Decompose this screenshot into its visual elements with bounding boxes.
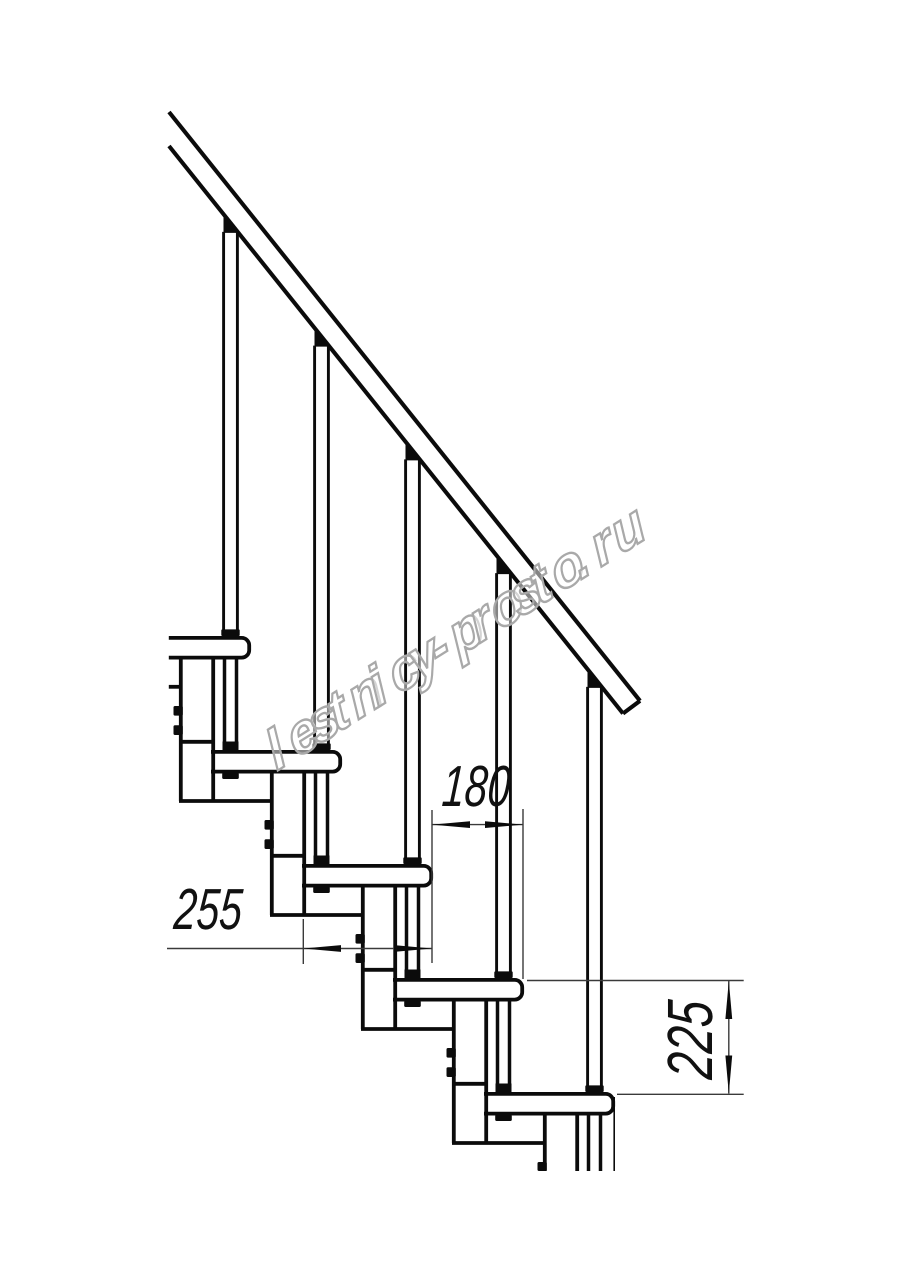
svg-text:180: 180 [440, 754, 513, 819]
svg-text:225: 225 [654, 998, 726, 1082]
svg-text:255: 255 [171, 877, 245, 942]
